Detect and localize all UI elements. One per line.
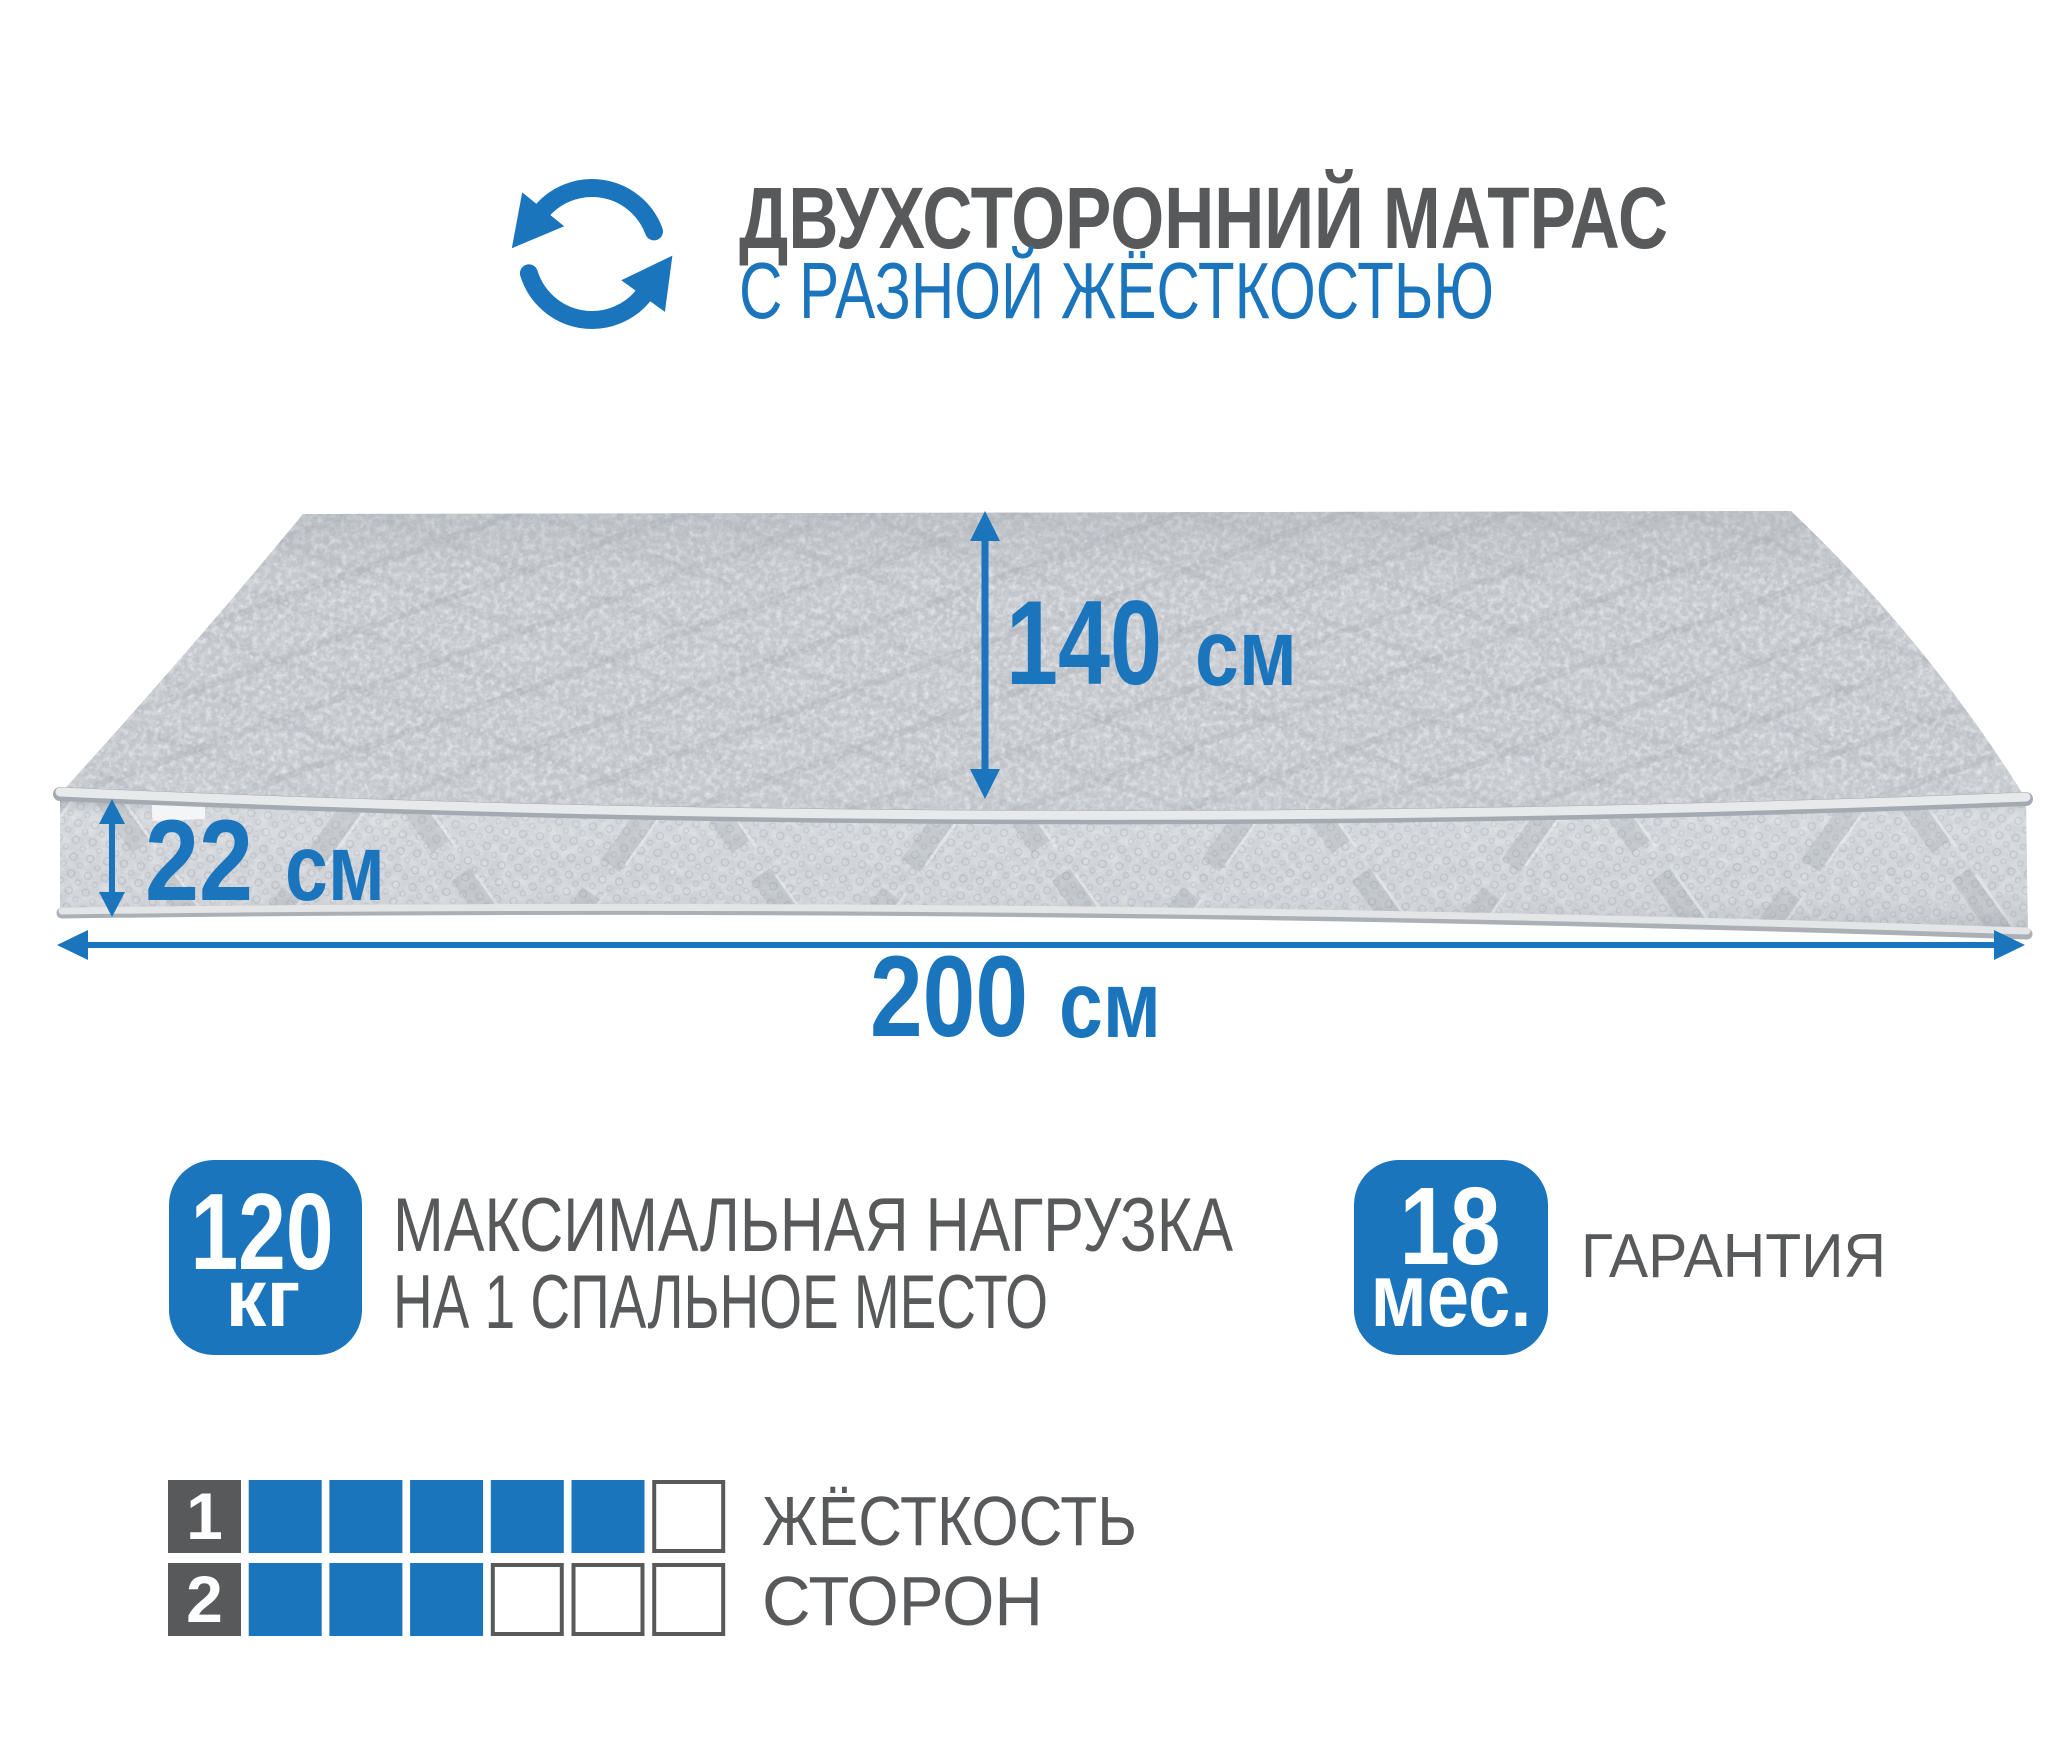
svg-text:2: 2 bbox=[186, 1562, 223, 1636]
svg-text:мес.: мес. bbox=[1371, 1246, 1532, 1346]
svg-text:1: 1 bbox=[186, 1479, 223, 1553]
svg-text:НА 1 СПАЛЬНОЕ МЕСТО: НА 1 СПАЛЬНОЕ МЕСТО bbox=[393, 1260, 1048, 1345]
svg-text:С РАЗНОЙ ЖЁСТКОСТЬЮ: С РАЗНОЙ ЖЁСТКОСТЬЮ bbox=[739, 245, 1494, 335]
svg-text:СТОРОН: СТОРОН bbox=[762, 1562, 1043, 1640]
svg-text:ЖЁСТКОСТЬ: ЖЁСТКОСТЬ bbox=[762, 1482, 1137, 1560]
svg-text:кг: кг bbox=[226, 1253, 301, 1344]
svg-text:200: 200 bbox=[870, 933, 1028, 1061]
svg-text:ГАРАНТИЯ: ГАРАНТИЯ bbox=[1581, 1222, 1886, 1291]
svg-text:22: 22 bbox=[145, 797, 253, 925]
svg-text:МАКСИМАЛЬНАЯ НАГРУЗКА: МАКСИМАЛЬНАЯ НАГРУЗКА bbox=[393, 1183, 1233, 1268]
svg-text:140: 140 bbox=[1006, 576, 1162, 710]
svg-text:см: см bbox=[285, 815, 385, 921]
svg-text:см: см bbox=[1059, 952, 1161, 1058]
svg-text:см: см bbox=[1195, 600, 1297, 706]
